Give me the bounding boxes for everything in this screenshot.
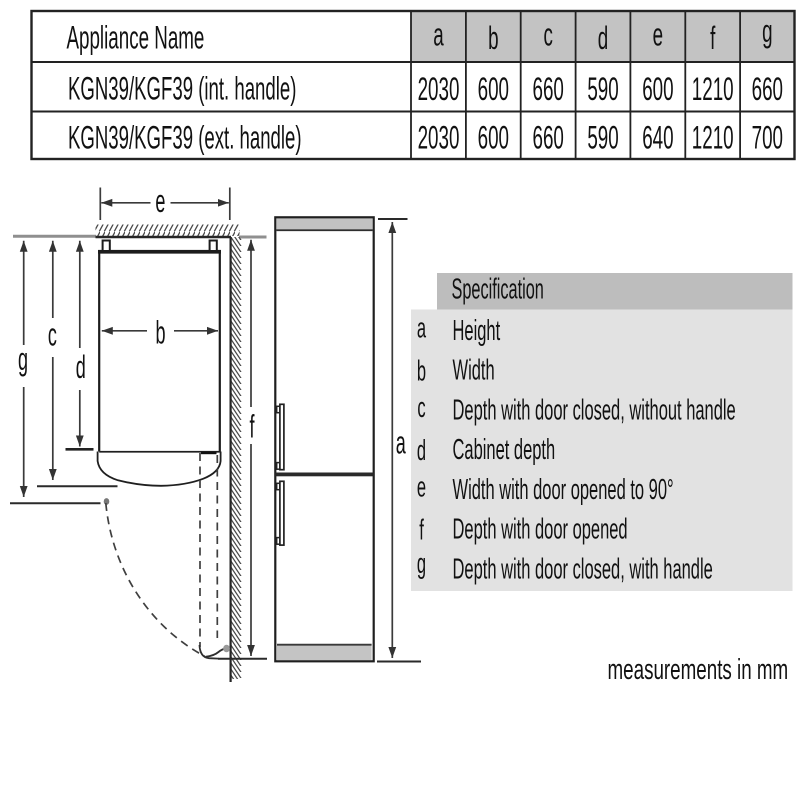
svg-text:590: 590	[587, 71, 618, 108]
svg-text:590: 590	[587, 119, 618, 156]
svg-text:c: c	[417, 391, 425, 423]
svg-text:700: 700	[752, 119, 783, 156]
svg-text:Depth with door closed, withou: Depth with door closed, without handle	[453, 393, 736, 425]
svg-text:Cabinet depth: Cabinet depth	[453, 433, 556, 465]
svg-text:600: 600	[642, 71, 673, 108]
svg-text:2030: 2030	[418, 119, 460, 156]
svg-text:2030: 2030	[418, 71, 460, 108]
svg-text:a: a	[417, 312, 427, 344]
svg-text:660: 660	[752, 71, 783, 108]
svg-text:1210: 1210	[692, 119, 734, 156]
svg-text:KGN39/KGF39 (ext. handle): KGN39/KGF39 (ext. handle)	[68, 119, 302, 156]
svg-text:e: e	[653, 16, 663, 53]
svg-text:Specification: Specification	[452, 273, 544, 305]
svg-text:g: g	[417, 547, 426, 579]
svg-text:600: 600	[478, 71, 509, 108]
svg-text:Depth with door closed, with h: Depth with door closed, with handle	[453, 552, 713, 584]
svg-text:g: g	[18, 340, 28, 377]
svg-text:660: 660	[533, 71, 564, 108]
svg-text:1210: 1210	[692, 71, 734, 108]
svg-text:a: a	[433, 16, 444, 53]
svg-text:Appliance Name: Appliance Name	[67, 19, 205, 56]
svg-text:c: c	[48, 316, 57, 353]
svg-text:c: c	[544, 16, 553, 53]
svg-text:a: a	[396, 424, 406, 461]
svg-text:d: d	[598, 20, 608, 57]
svg-text:Width with door opened to 90°: Width with door opened to 90°	[453, 473, 674, 505]
svg-text:d: d	[417, 434, 426, 466]
svg-text:e: e	[155, 183, 165, 220]
svg-text:d: d	[76, 348, 86, 385]
svg-text:660: 660	[533, 119, 564, 156]
svg-text:640: 640	[642, 119, 673, 156]
svg-text:b: b	[417, 355, 426, 387]
svg-text:f: f	[419, 514, 424, 546]
svg-text:b: b	[155, 314, 165, 351]
svg-text:f: f	[249, 408, 254, 445]
svg-text:e: e	[417, 471, 426, 503]
svg-text:g: g	[762, 13, 772, 50]
svg-text:Height: Height	[453, 314, 501, 346]
svg-text:Depth with door opened: Depth with door opened	[453, 513, 628, 545]
svg-text:measurements in mm: measurements in mm	[608, 654, 789, 686]
svg-text:b: b	[488, 20, 498, 57]
svg-text:600: 600	[478, 119, 509, 156]
svg-text:KGN39/KGF39 (int. handle): KGN39/KGF39 (int. handle)	[68, 70, 296, 107]
svg-text:Width: Width	[453, 354, 495, 386]
svg-text:f: f	[710, 20, 716, 57]
